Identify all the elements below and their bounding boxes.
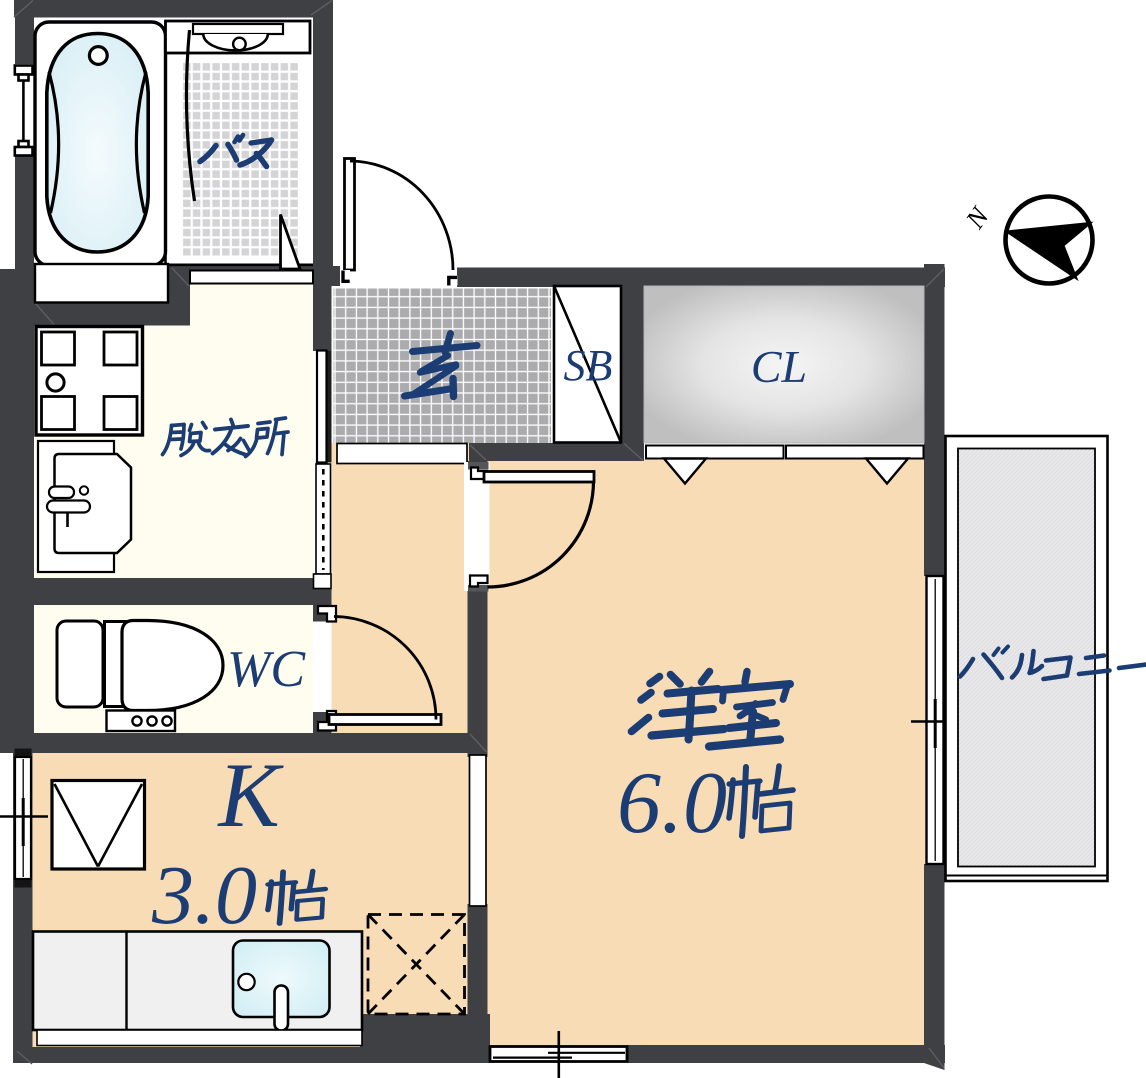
svg-text:SB: SB: [564, 341, 613, 390]
svg-text:3.0: 3.0: [151, 849, 257, 942]
svg-text:K: K: [216, 744, 284, 846]
svg-text:6.0: 6.0: [617, 755, 727, 852]
svg-text:WC: WC: [227, 641, 306, 698]
svg-text:CL: CL: [751, 341, 807, 392]
